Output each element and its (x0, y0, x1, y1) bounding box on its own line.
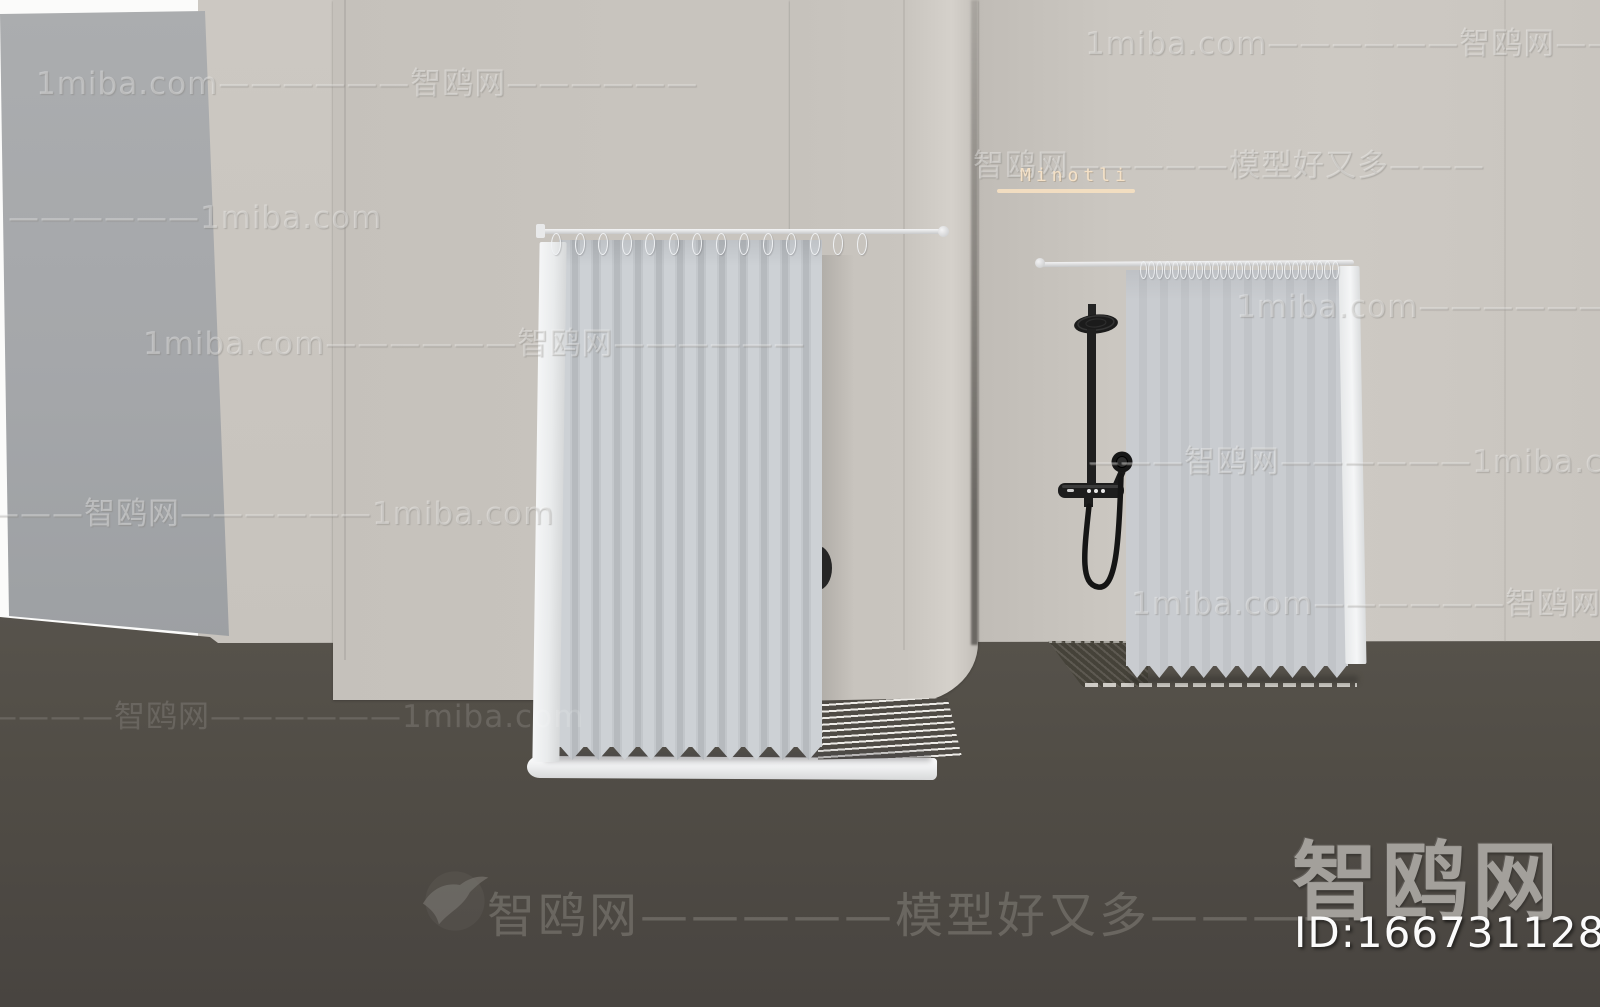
curtain-cast-shadow (820, 255, 854, 725)
brand-label: Minotli (1020, 165, 1131, 186)
curtain-rod-left-mount (536, 224, 545, 238)
wall-seam (1504, 0, 1506, 642)
curtain-rings-right (1140, 261, 1340, 281)
linear-drain-strip (1085, 683, 1357, 687)
curtain-rod-left-endcap (938, 226, 949, 237)
model-preview-scene: 1miba.com——————智鸥网——— 1miba.com——————智鸥网… (0, 0, 1600, 1007)
shower-fixture-graphic (1038, 298, 1148, 598)
wall-seam (903, 0, 905, 650)
wall-corner-shadow (971, 0, 978, 645)
curtain-rod-right-endcap (1035, 258, 1045, 268)
bird-logo-icon (418, 870, 492, 932)
shower-fixture (1038, 298, 1148, 598)
wall-seam (344, 0, 346, 660)
gray-side-panel (0, 8, 232, 642)
brand-label-underline (997, 189, 1135, 193)
hem-shadow-right (1130, 676, 1358, 683)
curtain-rings-left (551, 233, 881, 257)
model-id: ID:166731128 (1294, 908, 1600, 957)
shower-curtain-left (559, 240, 822, 747)
shower-curtain-right (1126, 270, 1348, 666)
